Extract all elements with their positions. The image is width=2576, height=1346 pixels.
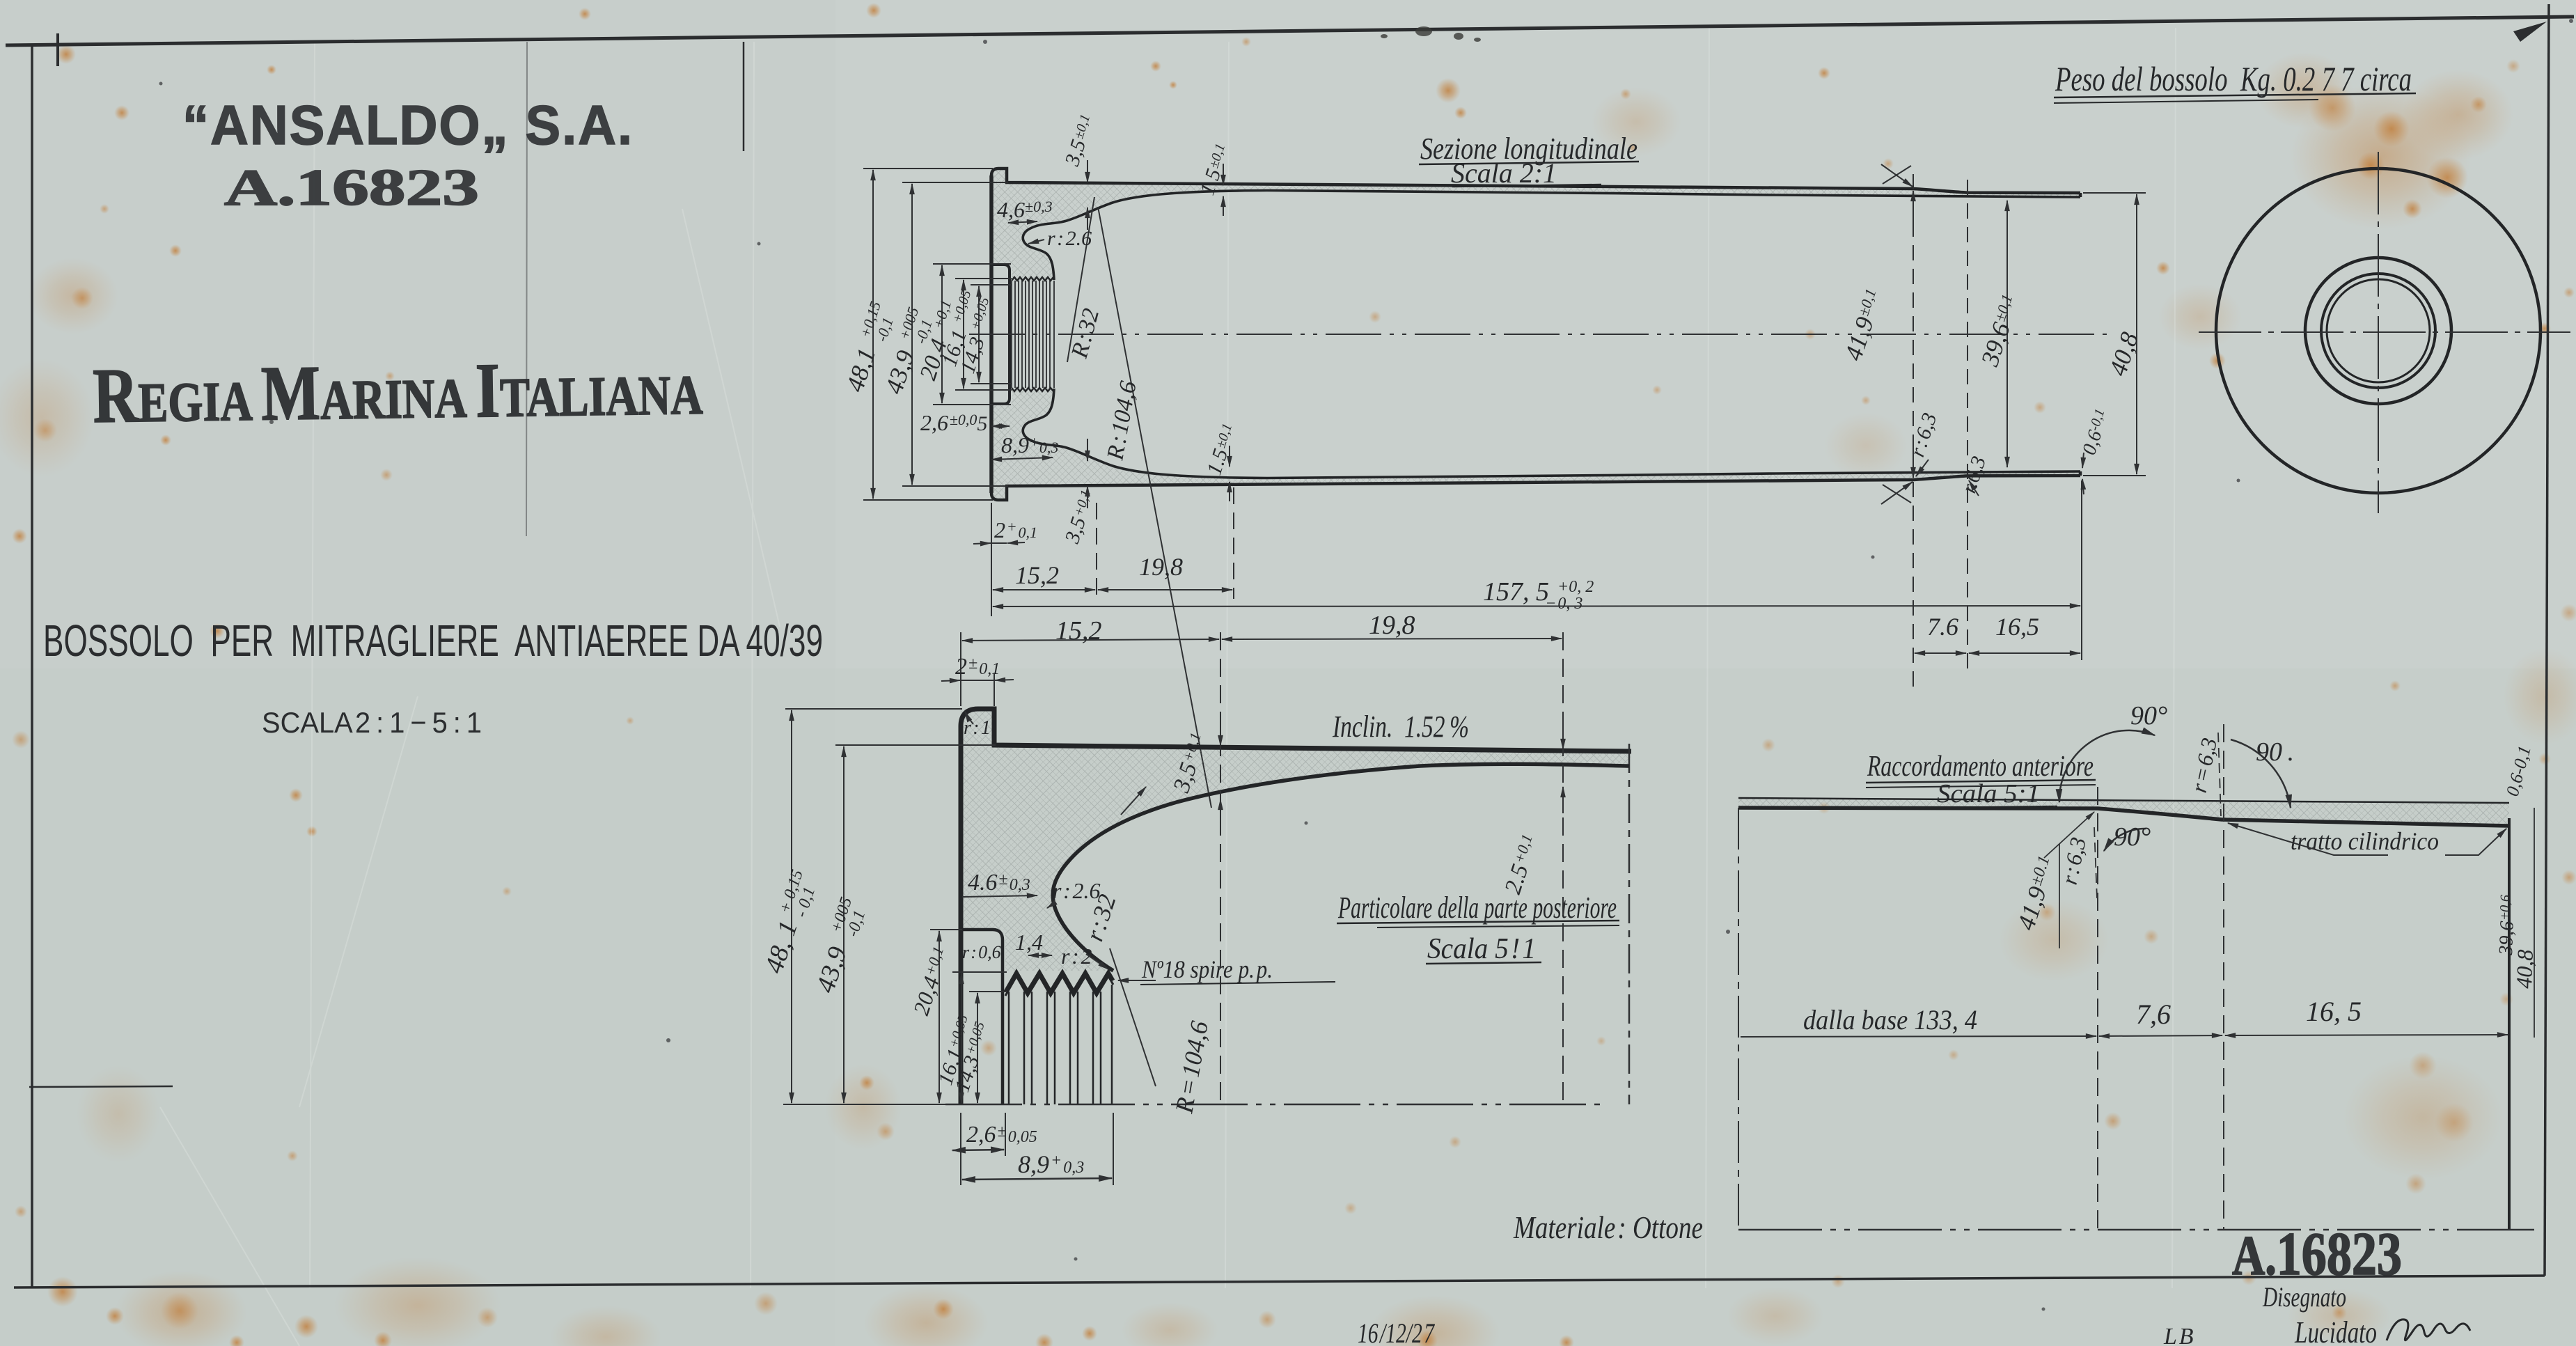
svg-text:90°: 90° [2130, 701, 2167, 730]
svg-text:Inclin. 1.52 %: Inclin. 1.52 % [1332, 710, 1469, 744]
svg-text:r : 2.6: r : 2.6 [1047, 227, 1092, 250]
svg-text:A.16823: A.16823 [224, 159, 479, 217]
svg-text:16, 5: 16, 5 [2306, 996, 2362, 1027]
svg-text:r : 1: r : 1 [964, 717, 991, 739]
svg-text:r : 0,6: r : 0,6 [962, 942, 1001, 962]
svg-text:1,4: 1,4 [1015, 930, 1043, 955]
svg-text:SCALA 2 : 1 − 5 : 1: SCALA 2 : 1 − 5 : 1 [262, 706, 482, 739]
svg-text:16 /12/2 7: 16 /12/2 7 [1358, 1317, 1435, 1346]
svg-text:90 .: 90 . [2256, 737, 2294, 767]
svg-text:19,8: 19,8 [1369, 611, 1415, 640]
svg-text:7,6: 7,6 [2136, 999, 2171, 1030]
svg-text:7.6: 7.6 [1927, 613, 1958, 641]
svg-text:r : 2: r : 2 [1061, 944, 1092, 969]
svg-text:dalla base 133, 4: dalla base 133, 4 [1803, 1004, 1977, 1035]
svg-text:Scala 5 ! 1: Scala 5 ! 1 [1427, 933, 1536, 965]
svg-text:BOSSOLO PER MITRAGLIERE ANT: BOSSOLO PER MITRAGLIERE ANTIAEREE DA 40/… [43, 616, 823, 666]
svg-text:15,2: 15,2 [1055, 616, 1102, 645]
svg-text:A.16823: A.16823 [2232, 1221, 2402, 1288]
svg-text:Lucidato: Lucidato [2294, 1315, 2377, 1346]
svg-text:Materiale : Ottone: Materiale : Ottone [1513, 1210, 1703, 1245]
svg-text:40,8: 40,8 [2511, 949, 2538, 989]
svg-text:16,5: 16,5 [1995, 613, 2039, 641]
svg-text:Raccordamento anteriore: Raccordamento anteriore [1867, 751, 2094, 783]
svg-text:L B: L B [2163, 1324, 2194, 1346]
svg-text:Disegnato: Disegnato [2262, 1281, 2346, 1313]
svg-text:19,8: 19,8 [1139, 553, 1183, 581]
svg-text:90°: 90° [2114, 822, 2151, 852]
svg-text:Scala 2:1: Scala 2:1 [1451, 157, 1557, 189]
svg-text:15,2: 15,2 [1015, 561, 1059, 589]
svg-text:“ANSALDO„ S.A.: “ANSALDO„ S.A. [182, 94, 634, 156]
svg-text:Peso del bossolo Kg. 0.2 7 7 c: Peso del bossolo Kg. 0.2 7 7 circa [2055, 59, 2412, 98]
svg-text:tratto cilindrico: tratto cilindrico [2291, 827, 2439, 855]
svg-text:Nº18 spire p. p.: Nº18 spire p. p. [1141, 955, 1273, 983]
svg-text:Particolare della parte poster: Particolare della parte posteriore [1337, 891, 1617, 925]
